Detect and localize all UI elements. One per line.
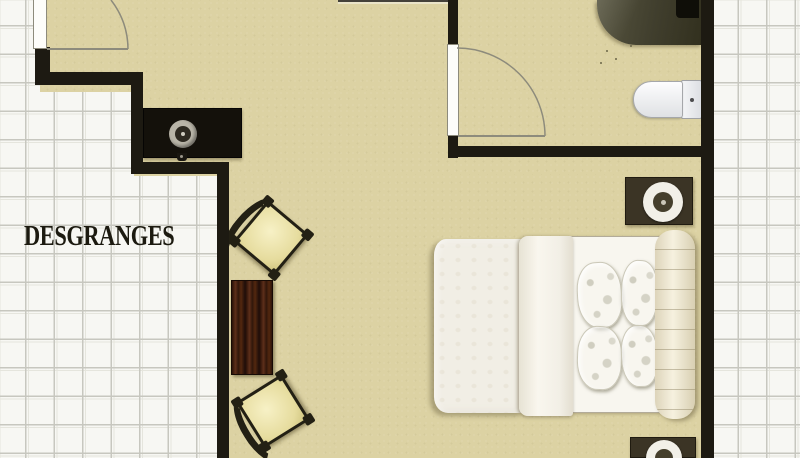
toilet-tank xyxy=(681,80,702,119)
console-table xyxy=(143,108,242,158)
entry-door-leaf xyxy=(33,0,47,49)
shower-fixture xyxy=(676,0,699,18)
cutoff-counter-edge xyxy=(338,0,448,4)
room-name-label: DESGRANGES xyxy=(24,221,174,253)
console-lamp-icon xyxy=(169,120,197,148)
wall-bathroom-horizontal xyxy=(448,146,713,157)
console-lamp-dot xyxy=(181,132,185,136)
wall-step-horizontal-2 xyxy=(131,162,229,174)
floor-speck xyxy=(600,62,602,64)
bed-mattress xyxy=(570,236,666,413)
wall-left-main xyxy=(217,162,229,458)
toilet-bowl xyxy=(633,81,683,118)
nightstand-lower xyxy=(630,437,696,458)
bed-duvet xyxy=(434,239,524,413)
wall-step-vertical-1 xyxy=(131,72,143,174)
toilet-flush-button xyxy=(690,98,694,102)
bed-headboard xyxy=(655,230,695,419)
pillow xyxy=(576,325,623,391)
bathroom-door-opening xyxy=(447,44,459,136)
bed-duvet-fold xyxy=(519,236,573,416)
floor-speck xyxy=(630,45,632,47)
wood-side-table xyxy=(231,280,273,375)
nightstand-upper xyxy=(625,177,693,225)
floor-speck xyxy=(606,50,608,52)
pillow xyxy=(620,259,659,326)
pillow xyxy=(620,324,659,387)
wall-right-exterior xyxy=(701,0,714,458)
floor-speck xyxy=(615,58,617,60)
console-knob xyxy=(177,153,187,161)
wall-bathroom-partition-top xyxy=(448,0,458,46)
table-lamp-dot xyxy=(661,200,666,205)
floor-plan: DESGRANGES xyxy=(0,0,800,458)
wall-step-horizontal-1 xyxy=(35,72,143,85)
